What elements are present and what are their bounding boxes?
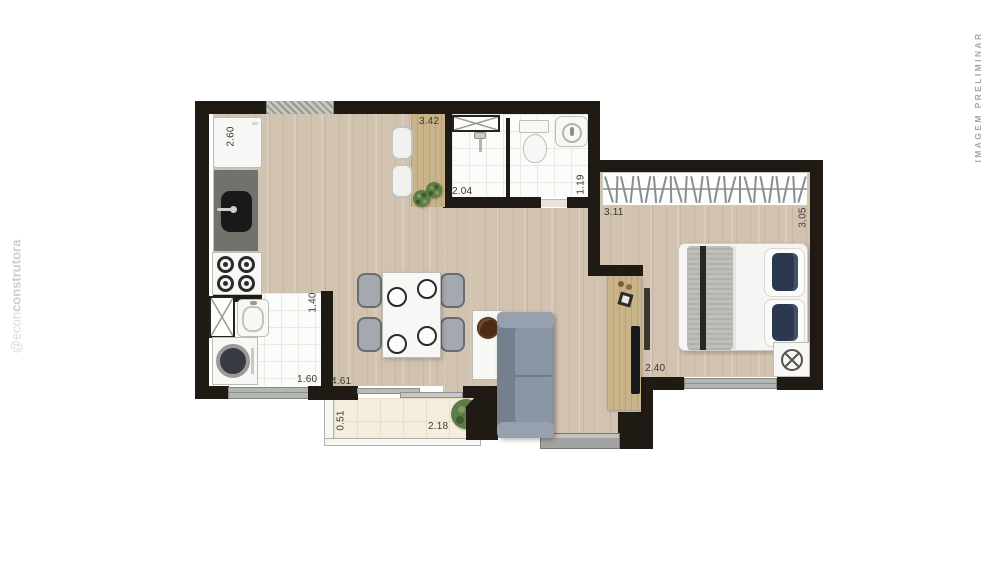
dim-bedroom-depth: 3.05 xyxy=(798,205,809,231)
dim-desk-wall: 3.42 xyxy=(419,116,439,127)
watermark-left: @econconstrutora xyxy=(9,197,24,397)
hanger-icon xyxy=(644,176,651,203)
hanger-icon xyxy=(690,176,698,203)
hanger-icon xyxy=(669,176,671,203)
hanger-icon xyxy=(782,176,790,203)
wall-service-bottom-right xyxy=(308,386,358,400)
hanger-icon xyxy=(759,176,766,203)
dim-closet-wall: 3.11 xyxy=(604,207,624,218)
plate-icon xyxy=(387,287,407,307)
wall-bathroom-bottom-a xyxy=(443,197,541,208)
hanger-icon xyxy=(684,176,687,203)
wall-left xyxy=(195,101,209,399)
wall-bedroom-top xyxy=(596,160,823,172)
bathroom-window-x xyxy=(452,115,500,132)
pillow-case xyxy=(772,304,798,341)
fan-symbol-icon xyxy=(780,348,804,372)
dim-lavatory: 1.19 xyxy=(576,172,587,198)
desk-chair xyxy=(391,164,413,198)
wall-bathroom-right xyxy=(588,101,600,276)
duvet-fold xyxy=(733,246,736,350)
hanger-icon xyxy=(674,176,683,203)
wall-top xyxy=(195,101,600,114)
sofa-armrest xyxy=(497,422,554,438)
dining-chair xyxy=(357,273,382,308)
shower-head-icon xyxy=(474,132,486,139)
plate-icon xyxy=(417,326,437,346)
tank-basin-icon xyxy=(242,306,264,332)
faucet-icon xyxy=(217,208,231,211)
closet xyxy=(602,172,808,206)
hanger-icon xyxy=(659,176,667,203)
service-window xyxy=(228,387,309,399)
washer-door-icon xyxy=(216,344,250,378)
wall-bedroom-bottom-a xyxy=(641,377,684,390)
dim-fridge-wall: 2.60 xyxy=(226,124,237,150)
bed-pillow xyxy=(764,248,805,297)
balcony-rail-left xyxy=(324,396,334,444)
hanger-icon xyxy=(792,176,795,203)
bed xyxy=(678,243,808,351)
wall-bedroom-right xyxy=(810,160,823,390)
dim-bedroom-width: 2.40 xyxy=(645,363,665,374)
toilet-tank xyxy=(519,120,549,133)
pillow-case xyxy=(772,253,798,291)
decor-dot-icon xyxy=(618,281,624,287)
bathroom-door-threshold xyxy=(541,199,567,207)
hanger-icon xyxy=(776,176,781,203)
hanger-icon xyxy=(797,176,806,203)
sofa-cushion xyxy=(515,328,552,377)
duvet-stripe xyxy=(700,246,706,350)
hanger-icon xyxy=(753,176,757,203)
stove xyxy=(212,252,262,295)
nightstand xyxy=(773,342,810,377)
dim-balcony-width: 2.18 xyxy=(428,421,448,432)
watermark-right: IMAGEM PRELIMINAR xyxy=(973,17,983,177)
hanger-icon xyxy=(630,176,635,203)
bedroom-sliding-door xyxy=(644,288,650,350)
watermark-left-prefix: @econ xyxy=(9,312,24,353)
hanger-icon xyxy=(653,176,657,203)
dim-service-width: 1.40 xyxy=(308,290,319,316)
plate-icon xyxy=(417,279,437,299)
desk-chair xyxy=(391,126,413,160)
hanger-icon xyxy=(615,176,618,203)
kitchen-sink xyxy=(221,191,252,232)
wall-shower-divider xyxy=(506,118,510,201)
stove-burner-icon xyxy=(238,256,255,273)
washer-hinge-icon xyxy=(251,348,254,374)
wall-entry-corner xyxy=(618,412,653,449)
bathroom-sink xyxy=(555,116,588,147)
closet-hangers xyxy=(603,173,807,205)
floorplan-canvas: @econconstrutora IMAGEM PRELIMINAR xyxy=(0,0,1000,562)
wall-bedroom-bottom-b xyxy=(777,377,823,390)
service-window-x xyxy=(209,296,235,338)
window-x-icon xyxy=(211,298,233,336)
decor-dot-icon xyxy=(626,284,632,290)
toilet-bowl xyxy=(523,134,547,163)
sofa-cushion xyxy=(515,377,552,422)
bed-pillow xyxy=(764,299,805,347)
balcony-sliding-door-track-2 xyxy=(400,392,463,398)
dim-shower: 2.04 xyxy=(452,186,472,197)
dining-chair xyxy=(440,273,465,308)
tv-icon xyxy=(631,326,640,394)
hanger-icon xyxy=(699,176,704,203)
stove-burner-icon xyxy=(217,256,234,273)
hanger-icon xyxy=(620,176,628,203)
sofa xyxy=(497,312,554,438)
hanger-icon xyxy=(604,176,614,202)
bed-duvet xyxy=(687,246,733,350)
tank-faucet-icon xyxy=(250,301,257,305)
decor-frame-inner xyxy=(621,295,630,304)
balcony-rail-bottom xyxy=(324,438,481,446)
sofa-armrest xyxy=(497,312,554,328)
hanger-icon xyxy=(739,176,741,203)
hanger-icon xyxy=(637,176,643,203)
faucet-knob-icon xyxy=(230,206,237,213)
watermark-left-suffix: construtora xyxy=(9,240,24,312)
laundry-tank xyxy=(237,299,269,337)
fridge-handle xyxy=(252,122,258,125)
stove-burner-icon xyxy=(238,275,255,292)
dim-balcony-depth: 0.51 xyxy=(336,408,347,434)
wall-service-bottom-left xyxy=(195,386,229,399)
window-x-icon xyxy=(454,117,498,130)
sink-faucet-icon xyxy=(570,127,574,136)
hanger-icon xyxy=(706,176,712,203)
dining-chair xyxy=(440,317,465,352)
wall-bedroom-stub xyxy=(588,265,643,276)
desk-plant-icon xyxy=(413,190,430,207)
dim-living-width: 4.61 xyxy=(331,376,351,387)
shower-stem-icon xyxy=(479,139,482,152)
hanger-icon xyxy=(728,176,737,203)
hanger-icon xyxy=(743,176,752,203)
decor-tray-icon xyxy=(477,317,499,339)
washing-machine xyxy=(212,337,258,385)
plate-icon xyxy=(387,334,407,354)
bedroom-window xyxy=(684,378,777,389)
dim-service-length: 1.60 xyxy=(297,374,317,385)
dining-chair xyxy=(357,317,382,352)
fridge xyxy=(213,117,262,168)
sofa-backrest xyxy=(497,312,517,438)
hanger-icon xyxy=(768,176,774,203)
hanger-icon xyxy=(713,176,720,203)
stove-burner-icon xyxy=(217,275,234,292)
kitchen-window xyxy=(266,101,334,114)
hanger-icon xyxy=(723,176,727,203)
